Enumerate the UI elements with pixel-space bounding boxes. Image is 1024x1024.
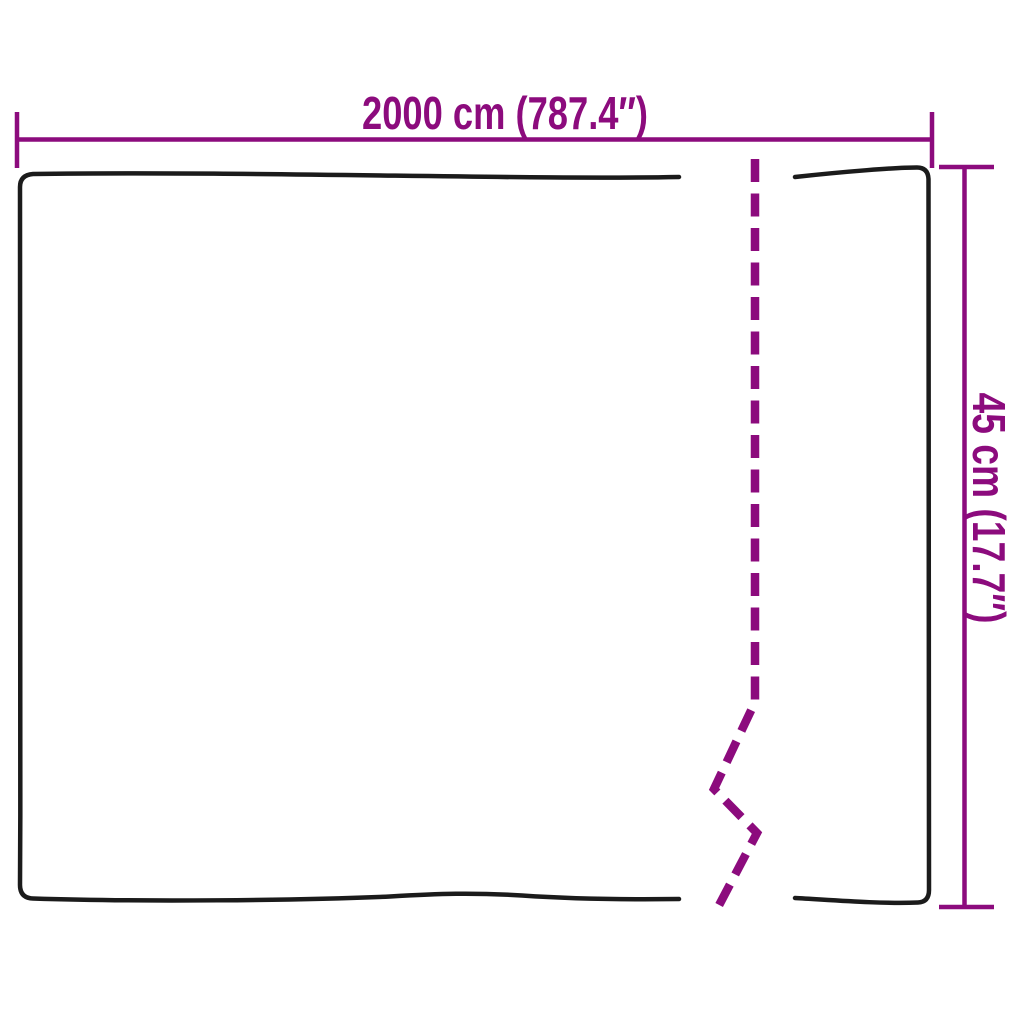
- diagram-background: [0, 0, 1024, 1024]
- width-dimension-label: 2000 cm (787.4″): [362, 87, 648, 139]
- height-dimension-label: 45 cm (17.7″): [963, 393, 1015, 624]
- diagram-svg: 2000 cm (787.4″) 45 cm (17.7″): [0, 0, 1024, 1024]
- product-dimension-diagram: 2000 cm (787.4″) 45 cm (17.7″): [0, 0, 1024, 1024]
